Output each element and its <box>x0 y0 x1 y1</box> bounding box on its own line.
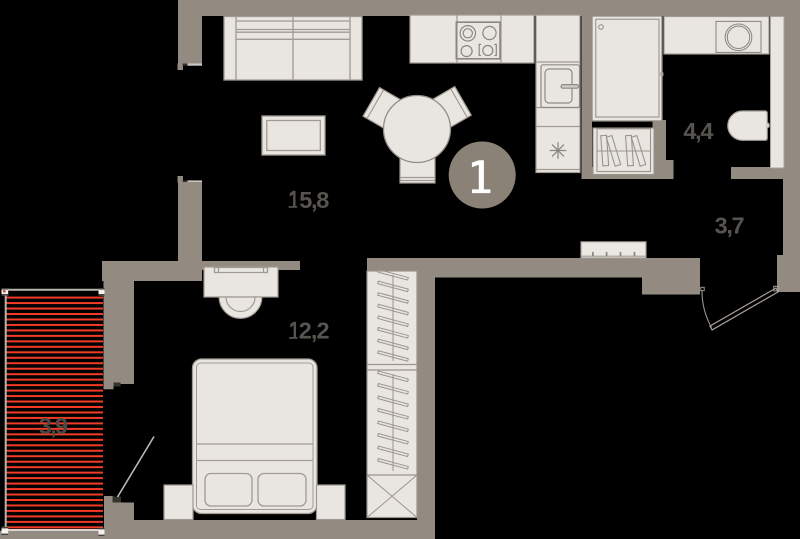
svg-text:5,8: 5,8 <box>299 187 329 213</box>
svg-text:3,9: 3,9 <box>39 413 68 439</box>
svg-text:4,4: 4,4 <box>683 118 713 144</box>
svg-text:2,2: 2,2 <box>299 318 330 344</box>
svg-text:3,7: 3,7 <box>715 213 745 239</box>
